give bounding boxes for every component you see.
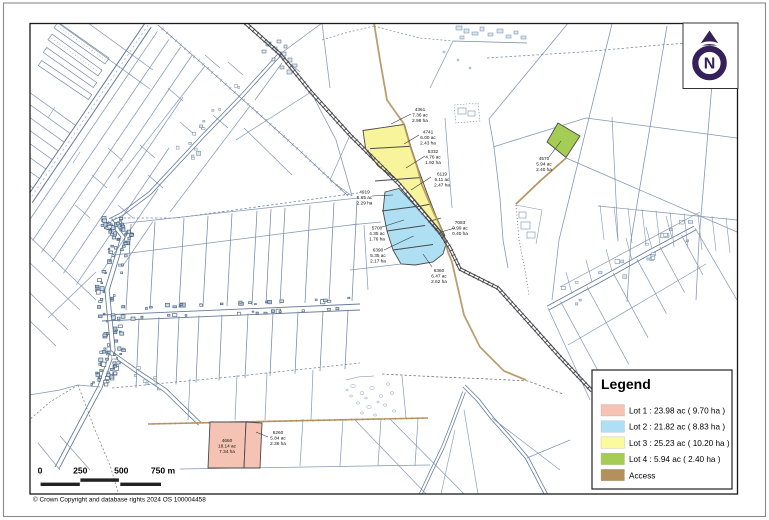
svg-text:© Crown Copyright and database: © Crown Copyright and database rights 20… <box>33 496 206 504</box>
svg-text:Lot 3 : 25.23 ac ( 10.20 ha ): Lot 3 : 25.23 ac ( 10.20 ha ) <box>629 439 730 448</box>
svg-text:500: 500 <box>114 466 129 476</box>
svg-text:750 m: 750 m <box>151 466 176 476</box>
svg-text:N: N <box>704 56 716 73</box>
svg-text:Legend: Legend <box>601 376 651 392</box>
svg-text:Lot 1 : 23.98 ac ( 9.70 ha ): Lot 1 : 23.98 ac ( 9.70 ha ) <box>629 407 725 416</box>
svg-text:250: 250 <box>73 466 88 476</box>
svg-text:Access: Access <box>629 471 655 480</box>
svg-text:Lot 2 : 21.82 ac ( 8.83 ha ): Lot 2 : 21.82 ac ( 8.83 ha ) <box>629 423 725 432</box>
svg-text:Lot 4 : 5.94 ac ( 2.40 ha ): Lot 4 : 5.94 ac ( 2.40 ha ) <box>629 455 721 464</box>
svg-text:0: 0 <box>38 466 43 476</box>
